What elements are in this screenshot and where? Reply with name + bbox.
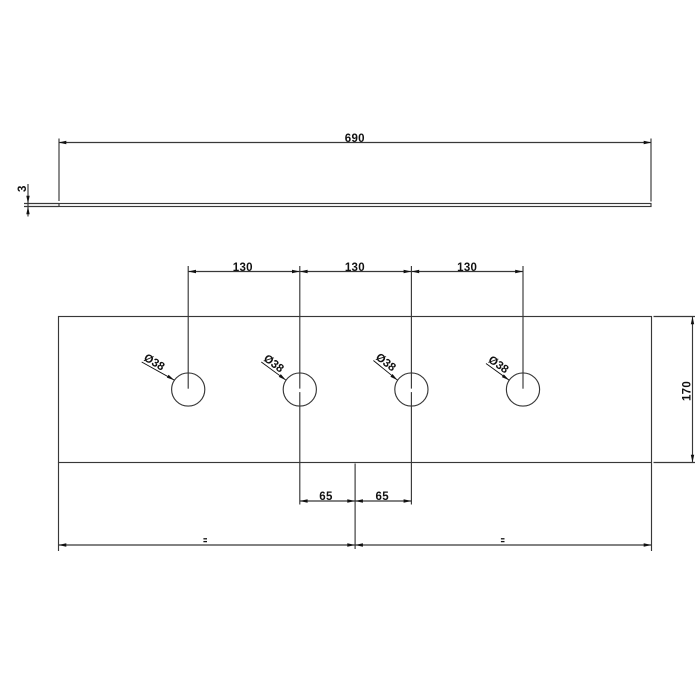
svg-text:170: 170 [681, 381, 693, 401]
svg-text:3: 3 [17, 185, 29, 192]
svg-text:65: 65 [376, 491, 390, 503]
svg-text:130: 130 [345, 262, 365, 274]
svg-text:65: 65 [319, 491, 333, 503]
svg-text:690: 690 [345, 133, 365, 145]
svg-text:130: 130 [457, 262, 477, 274]
svg-text:130: 130 [233, 262, 253, 274]
